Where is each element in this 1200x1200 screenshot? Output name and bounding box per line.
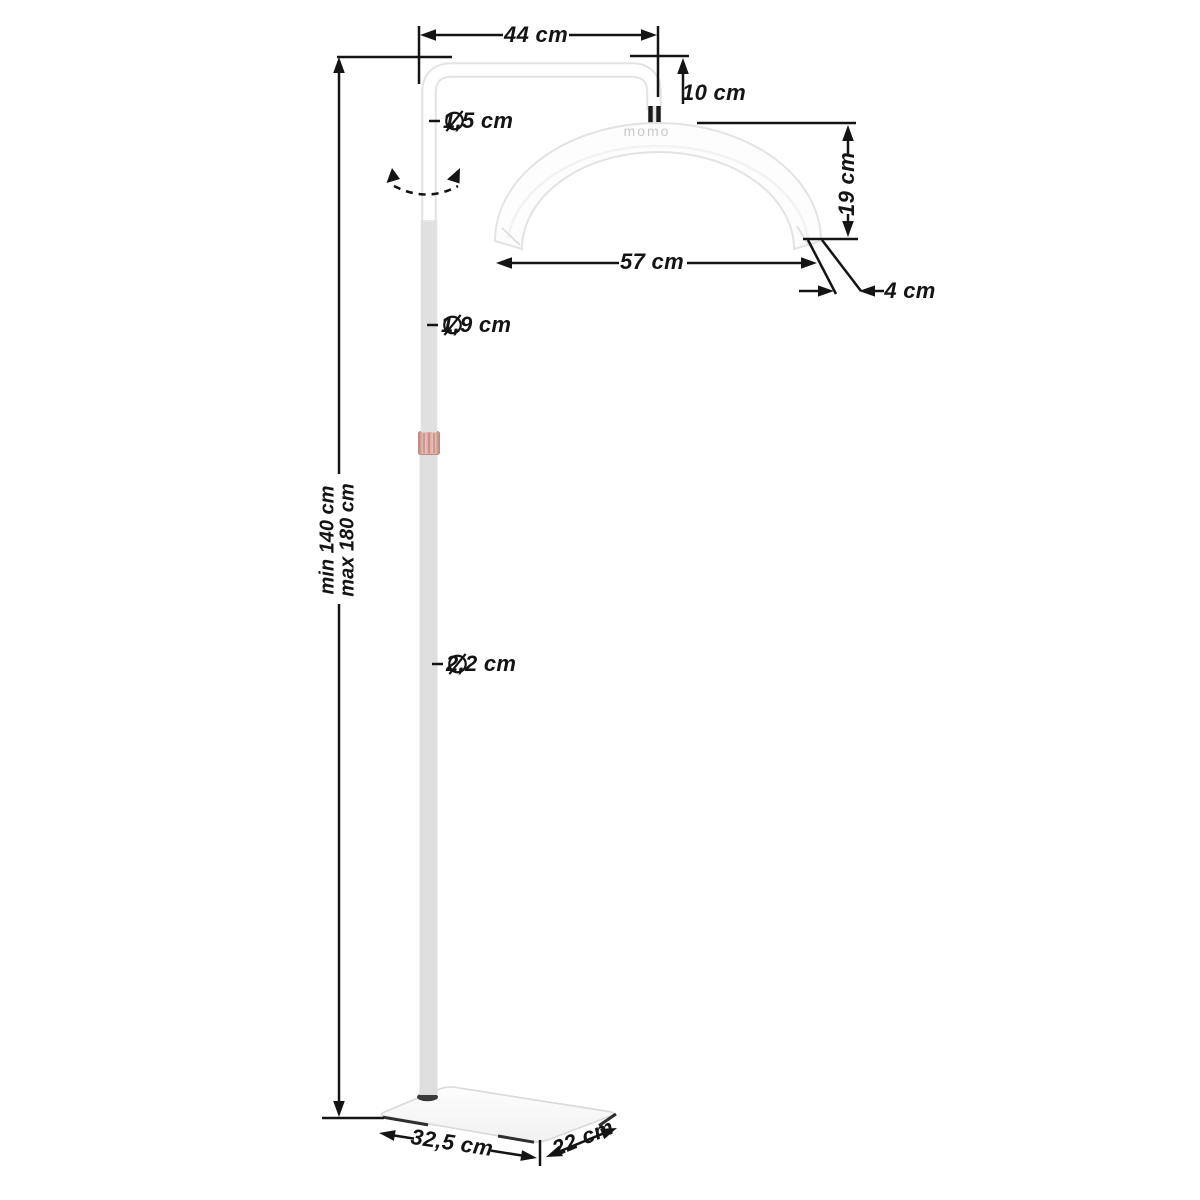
diameter-icon [446,651,469,676]
dim-label-height-max: max 180 cm [338,483,358,596]
dim-label-overall-height: min 140 cm max 180 cm [319,483,358,596]
dim-label-mid-diameter: 1,9 cm [441,312,511,338]
lamp-head-arc [495,123,821,249]
diameter-icon [441,312,464,337]
dim-label-head-tube-width: 4 cm [884,278,935,304]
dim-label-lower-diameter: 2,2 cm [446,651,516,677]
diameter-icon [443,108,466,133]
pole-collar [419,432,440,455]
dim-label-upper-diameter: 1,5 cm [443,108,513,134]
dim-head-tube-width [799,240,884,297]
dim-label-arm-drop: 10 cm [682,80,746,106]
dim-label-height-min: min 140 cm [319,483,339,596]
dim-label-head-height: 19 cm [834,152,860,216]
lamp-dimension-diagram: momo 44 cm 10 cm 1,5 cm 19 cm 57 cm 4 cm… [0,0,1200,1200]
dim-label-arm-length: 44 cm [504,22,568,48]
brand-logo: momo [624,123,671,139]
dim-label-head-span: 57 cm [620,249,684,275]
diagram-linework [0,0,1200,1200]
